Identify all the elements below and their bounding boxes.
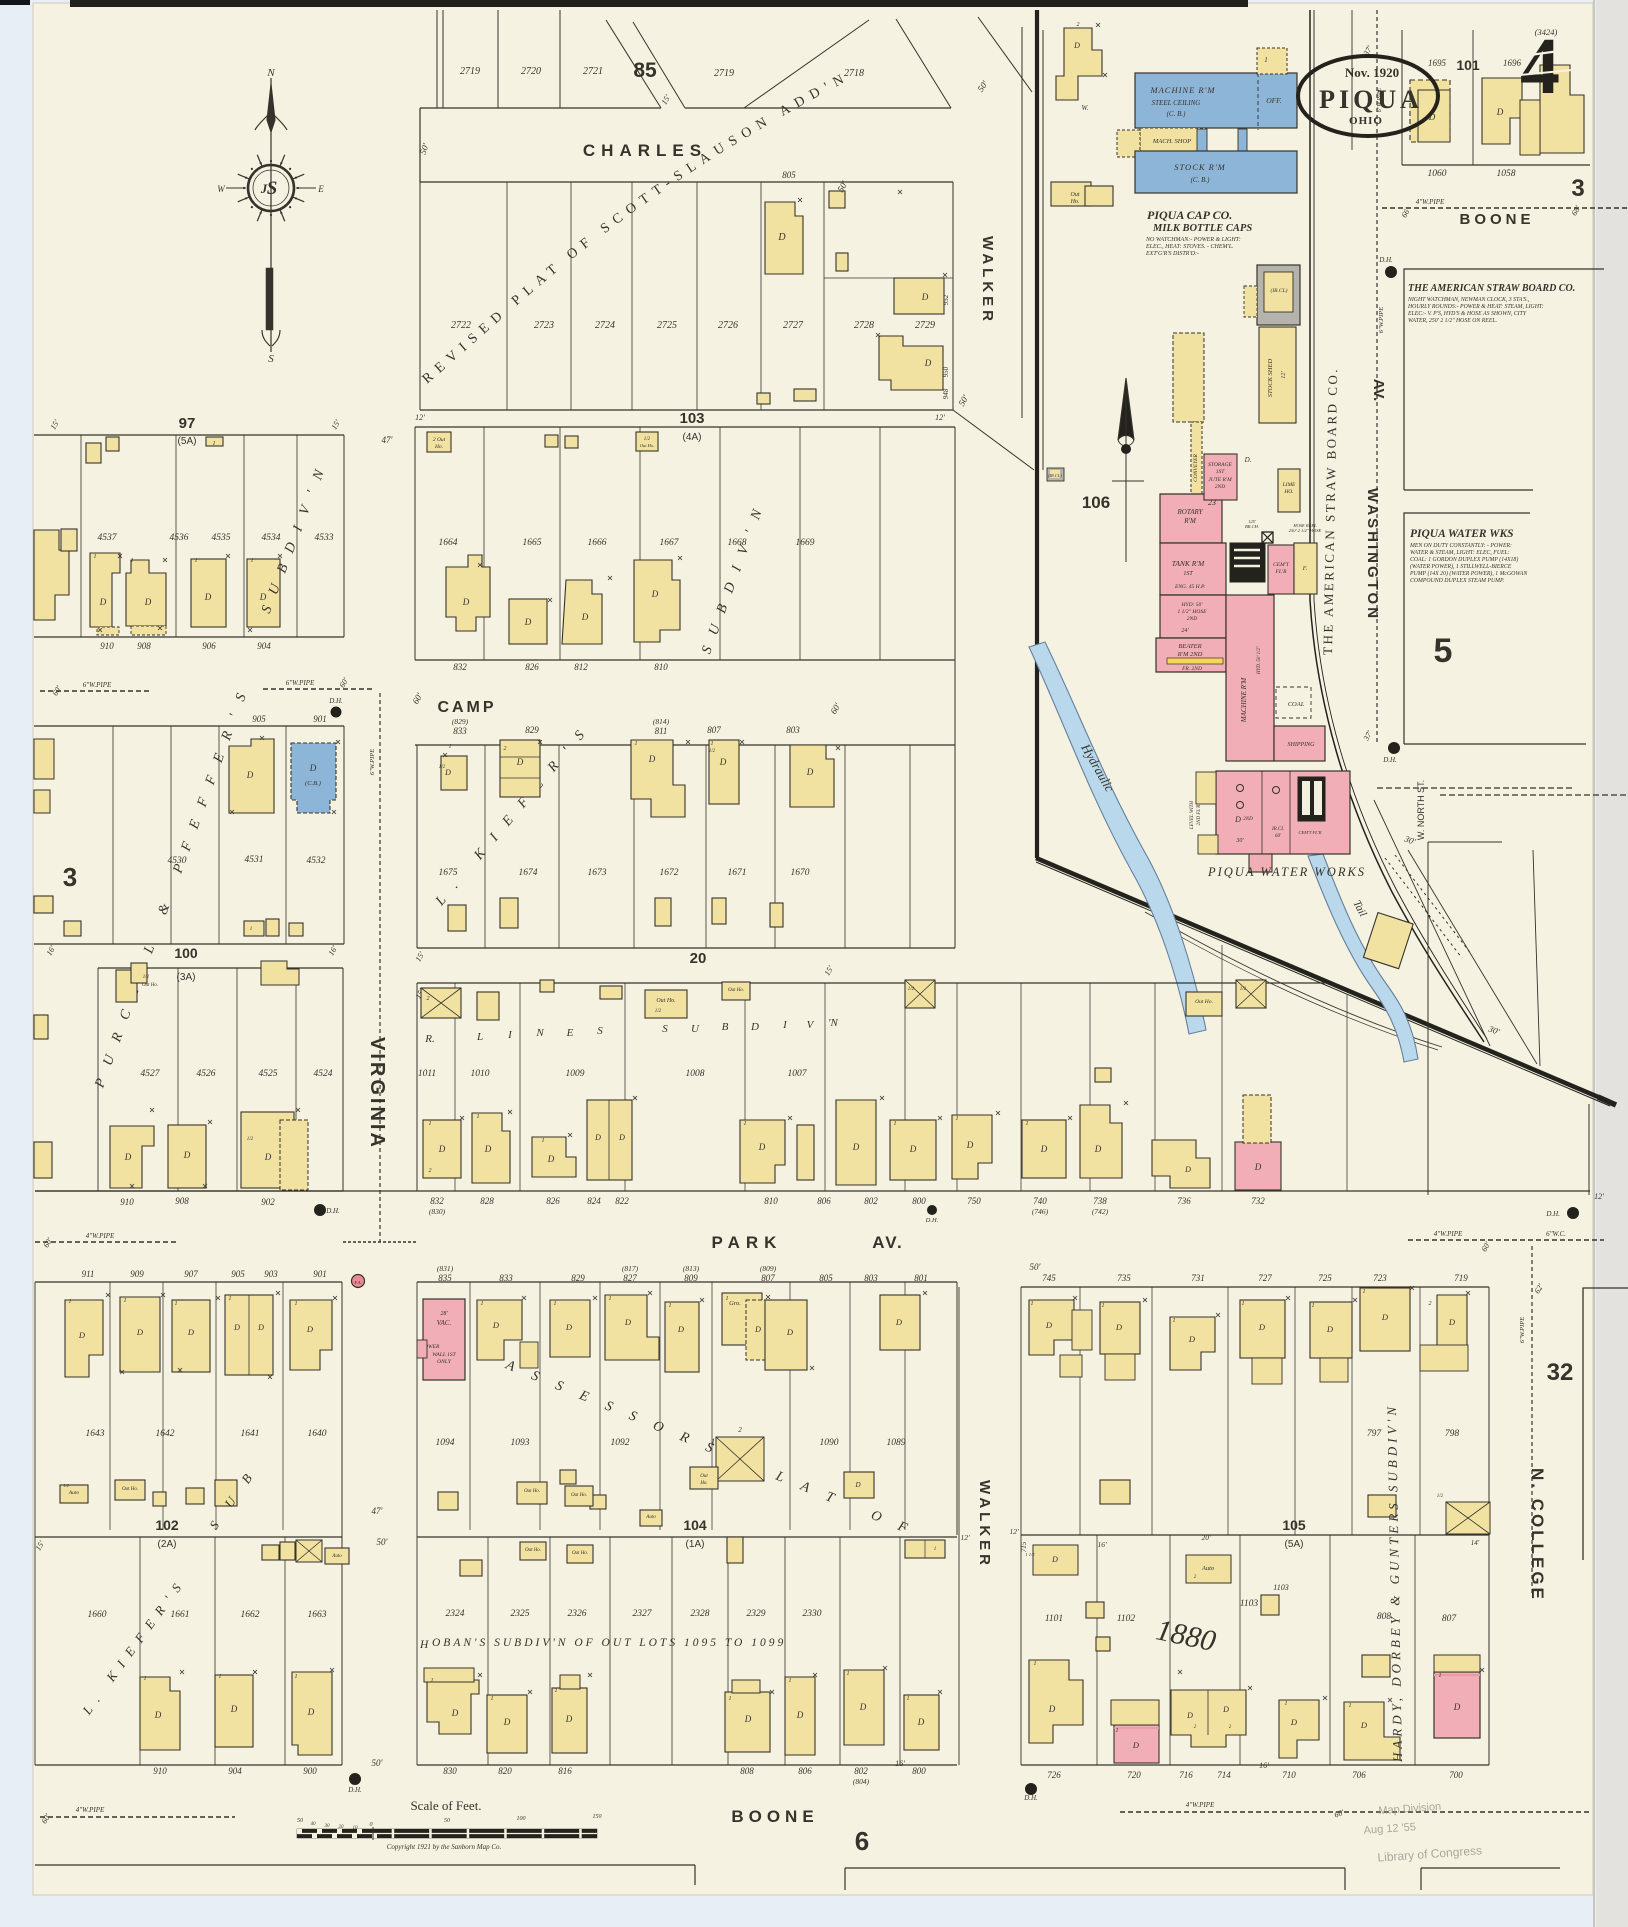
svg-text:2723: 2723 (534, 320, 554, 331)
svg-text:1090: 1090 (820, 1438, 839, 1448)
svg-text:60': 60' (1275, 834, 1282, 839)
svg-text:R'M: R'M (1183, 517, 1197, 525)
svg-text:1670: 1670 (791, 868, 810, 878)
svg-text:1: 1 (1031, 1301, 1034, 1307)
svg-text:811: 811 (655, 726, 668, 736)
svg-text:1: 1 (251, 558, 254, 564)
svg-text:2330: 2330 (803, 1609, 822, 1619)
svg-text:835: 835 (438, 1273, 452, 1283)
svg-text:24': 24' (1181, 627, 1189, 634)
svg-text:4533: 4533 (315, 533, 334, 543)
svg-text:829: 829 (571, 1273, 585, 1283)
svg-text:1672: 1672 (660, 868, 679, 878)
svg-text:OHIO: OHIO (1349, 115, 1383, 127)
svg-text:2729: 2729 (915, 320, 935, 331)
svg-text:D.H.: D.H. (347, 1786, 362, 1794)
svg-text:D: D (78, 1330, 86, 1340)
svg-text:911: 911 (82, 1269, 95, 1279)
svg-text:'N: 'N (828, 1017, 838, 1029)
svg-text:1: 1 (894, 1121, 897, 1127)
svg-text:WATER, 250' 2 1/2" HOSE ON REE: WATER, 250' 2 1/2" HOSE ON REEL. (1408, 318, 1497, 324)
svg-text:D: D (786, 1327, 794, 1337)
svg-text:1/2: 1/2 (709, 749, 716, 754)
svg-text:802: 802 (864, 1196, 878, 1206)
svg-text:N. COLLEGE: N. COLLEGE (1528, 1468, 1547, 1602)
svg-text:1: 1 (250, 927, 253, 932)
svg-text:D: D (492, 1320, 500, 1330)
svg-text:1: 1 (956, 1116, 959, 1122)
svg-text:Gro.: Gro. (729, 1300, 741, 1307)
svg-text:12': 12' (1009, 1527, 1019, 1536)
svg-text:807: 807 (1442, 1614, 1458, 1624)
svg-text:85: 85 (633, 59, 657, 82)
svg-text:J: J (260, 181, 268, 196)
svg-text:D: D (462, 597, 470, 607)
svg-text:1: 1 (726, 1296, 729, 1302)
svg-text:WATER & STEAM, LIGHT: ELEC, FU: WATER & STEAM, LIGHT: ELEC, FUEL: (1410, 550, 1510, 556)
svg-text:D: D (187, 1327, 195, 1337)
svg-text:908: 908 (175, 1196, 189, 1206)
svg-text:D: D (230, 1704, 238, 1714)
svg-text:1010: 1010 (471, 1069, 490, 1079)
svg-text:D.H.: D.H. (1378, 256, 1393, 264)
svg-text:4"W.PIPE: 4"W.PIPE (1434, 1230, 1463, 1238)
svg-text:1: 1 (635, 741, 638, 747)
svg-text:PUMP (14X 20) (WATER POWER), 1: PUMP (14X 20) (WATER POWER), 1 McGOWAN (1409, 570, 1528, 577)
svg-text:ELEC:- V. P'S, HYD'S & HOSE AS: ELEC:- V. P'S, HYD'S & HOSE AS SHOWN, CI… (1407, 311, 1527, 317)
svg-text:1: 1 (295, 1674, 298, 1680)
svg-text:Ho.: Ho. (1070, 199, 1080, 205)
svg-text:6"W.PIPE: 6"W.PIPE (83, 681, 112, 689)
svg-text:2724: 2724 (595, 320, 615, 331)
svg-text:NIGHT WATCHMAN, NEWMAN CLOCK,: NIGHT WATCHMAN, NEWMAN CLOCK, 3 STA'S., (1407, 297, 1530, 303)
svg-text:14': 14' (1471, 1539, 1480, 1547)
svg-text:826: 826 (546, 1196, 560, 1206)
svg-text:(4A): (4A) (683, 432, 702, 443)
svg-text:826: 826 (525, 662, 539, 672)
svg-text:D: D (581, 612, 589, 622)
svg-text:50': 50' (1030, 1262, 1042, 1272)
svg-text:Out Ho.: Out Ho. (728, 988, 744, 993)
svg-text:Out: Out (1071, 192, 1080, 198)
svg-text:1: 1 (213, 441, 216, 447)
svg-text:U: U (691, 1023, 700, 1035)
svg-text:2: 2 (427, 996, 430, 1002)
svg-text:6"W.PIPE: 6"W.PIPE (369, 749, 376, 776)
svg-text:ELEC., HEAT: STOVES. - CHEM'L.: ELEC., HEAT: STOVES. - CHEM'L. (1145, 244, 1234, 250)
svg-text:STORAGE: STORAGE (1208, 462, 1232, 468)
svg-text:806: 806 (798, 1766, 812, 1776)
svg-text:(5A): (5A) (178, 436, 197, 447)
svg-text:D: D (594, 1133, 601, 1142)
svg-text:D: D (1258, 1322, 1266, 1332)
svg-text:4534: 4534 (262, 533, 281, 543)
svg-text:Nov. 1920: Nov. 1920 (1345, 65, 1399, 80)
svg-text:2726: 2726 (718, 320, 738, 331)
svg-text:BR.CH.: BR.CH. (1245, 524, 1259, 529)
svg-text:(C.B.): (C.B.) (305, 780, 321, 787)
svg-text:905: 905 (252, 714, 266, 724)
svg-text:Out Ho.: Out Ho. (640, 443, 655, 448)
svg-text:4532: 4532 (307, 856, 326, 866)
svg-text:CAMP: CAMP (437, 699, 496, 716)
svg-text:6"W.PIPE: 6"W.PIPE (286, 679, 315, 687)
svg-text:1641: 1641 (241, 1429, 260, 1439)
svg-text:1007: 1007 (788, 1069, 808, 1079)
svg-text:H: H (419, 1639, 429, 1651)
svg-text:6"W.C.: 6"W.C. (1546, 1230, 1566, 1238)
svg-text:D.H.: D.H. (925, 1217, 939, 1224)
svg-text:50': 50' (372, 1758, 384, 1768)
svg-text:D: D (1234, 815, 1241, 824)
svg-text:Out: Out (700, 1474, 708, 1479)
svg-text:Out Ho.: Out Ho. (525, 1548, 541, 1553)
svg-text:1/2: 1/2 (1240, 987, 1247, 992)
svg-text:6: 6 (855, 1826, 869, 1856)
svg-text:1011: 1011 (418, 1069, 436, 1079)
svg-text:32: 32 (1547, 1359, 1574, 1386)
svg-text:104: 104 (683, 1517, 707, 1533)
svg-text:WALKER: WALKER (976, 1480, 993, 1569)
svg-text:D: D (895, 1317, 903, 1327)
svg-text:D.H.: D.H. (1545, 1210, 1560, 1218)
svg-text:D: D (1496, 107, 1504, 117)
svg-text:Ho.: Ho. (434, 444, 443, 450)
svg-text:D: D (547, 1154, 555, 1164)
svg-text:1 1/2: 1 1/2 (1025, 1552, 1035, 1557)
svg-text:1695: 1695 (1428, 58, 1447, 68)
svg-text:1643: 1643 (86, 1429, 105, 1439)
svg-text:1: 1 (555, 1688, 558, 1694)
svg-text:D: D (204, 592, 212, 602)
svg-text:D: D (1045, 1320, 1053, 1330)
svg-text:2: 2 (504, 746, 507, 752)
svg-text:1089: 1089 (887, 1438, 906, 1448)
svg-text:AV.: AV. (1370, 379, 1387, 402)
svg-text:1: 1 (229, 1296, 232, 1302)
svg-text:4"W.PIPE: 4"W.PIPE (1416, 198, 1445, 206)
svg-text:810: 810 (764, 1196, 778, 1206)
svg-text:250' 2 1/2" HOSE: 250' 2 1/2" HOSE (1289, 528, 1322, 533)
svg-text:CONVEYER: CONVEYER (1193, 453, 1199, 481)
svg-text:1642: 1642 (156, 1429, 175, 1439)
svg-text:D: D (484, 1144, 492, 1154)
svg-text:D: D (618, 1133, 625, 1142)
svg-text:800: 800 (912, 1766, 926, 1776)
svg-text:Auto: Auto (331, 1554, 342, 1559)
svg-text:D: D (565, 1714, 573, 1724)
svg-text:IR.CL: IR.CL (1271, 827, 1284, 832)
svg-text:(1A): (1A) (686, 1539, 705, 1550)
svg-text:D: D (309, 763, 317, 773)
svg-text:MACH. SHOP: MACH. SHOP (1152, 138, 1191, 145)
svg-text:105: 105 (1282, 1517, 1306, 1533)
svg-text:D: D (1360, 1720, 1368, 1730)
svg-text:D: D (264, 1152, 272, 1162)
svg-text:1058: 1058 (1497, 169, 1516, 179)
svg-text:803: 803 (864, 1273, 878, 1283)
svg-text:D: D (1326, 1324, 1334, 1334)
svg-text:832: 832 (430, 1196, 444, 1206)
svg-text:1ST: 1ST (1216, 469, 1226, 475)
svg-text:Out Ho.: Out Ho. (572, 1551, 588, 1556)
svg-text:12': 12' (1281, 371, 1287, 379)
svg-text:OBAN'S SUBDIV'N OF OUT LOT: OBAN'S SUBDIV'N OF OUT LOTS 1095 TO 1099 (432, 1637, 786, 1649)
svg-text:R'M 2ND: R'M 2ND (1177, 651, 1203, 658)
svg-text:2329: 2329 (747, 1609, 766, 1619)
svg-text:(813): (813) (683, 1264, 700, 1273)
svg-text:803: 803 (786, 725, 800, 735)
svg-text:Copyright 1921 by the Sanborn: Copyright 1921 by the Sanborn Map Co. (387, 1843, 502, 1851)
svg-text:1: 1 (934, 1547, 937, 1552)
svg-text:D: D (677, 1324, 685, 1334)
svg-text:LIME: LIME (1282, 482, 1296, 488)
svg-text:714: 714 (1217, 1770, 1231, 1780)
svg-text:2: 2 (429, 1168, 432, 1174)
svg-text:12': 12' (935, 413, 945, 422)
svg-text:MILK BOTTLE CAPS: MILK BOTTLE CAPS (1152, 223, 1252, 234)
svg-text:STOCK R'M: STOCK R'M (1174, 162, 1226, 172)
svg-text:1/2: 1/2 (908, 987, 915, 992)
svg-text:901: 901 (313, 714, 327, 724)
svg-text:1 1/2" HOSE: 1 1/2" HOSE (1178, 609, 1208, 615)
svg-text:904: 904 (228, 1766, 242, 1776)
svg-text:1663: 1663 (308, 1610, 327, 1620)
svg-text:D: D (1040, 1144, 1048, 1154)
svg-text:TANK R'M: TANK R'M (1172, 559, 1205, 568)
svg-text:1: 1 (1102, 1303, 1105, 1309)
svg-text:4531: 4531 (245, 855, 264, 865)
svg-text:805: 805 (782, 170, 796, 180)
svg-text:2725: 2725 (657, 320, 677, 331)
svg-text:1: 1 (744, 1121, 747, 1127)
svg-text:798: 798 (1445, 1429, 1460, 1439)
svg-text:E: E (317, 184, 324, 194)
svg-text:(809): (809) (760, 1264, 777, 1273)
svg-text:D: D (516, 757, 524, 767)
svg-text:MEN ON DUTY CONSTANTLY: - POWE: MEN ON DUTY CONSTANTLY: - POWER: (1409, 543, 1512, 549)
svg-text:1: 1 (1349, 1703, 1352, 1709)
svg-text:1: 1 (175, 1301, 178, 1307)
svg-text:720: 720 (1127, 1770, 1141, 1780)
svg-text:4"W.PIPE: 4"W.PIPE (76, 1806, 105, 1814)
svg-text:1: 1 (1242, 1301, 1245, 1307)
svg-text:700: 700 (1449, 1770, 1463, 1780)
svg-text:1: 1 (1026, 1121, 1029, 1127)
svg-text:N: N (535, 1027, 544, 1039)
svg-text:1060: 1060 (1428, 169, 1447, 179)
svg-text:(831): (831) (437, 1264, 454, 1273)
svg-text:738: 738 (1093, 1196, 1107, 1206)
svg-text:R.: R. (424, 1033, 434, 1045)
svg-text:800: 800 (912, 1196, 926, 1206)
svg-text:125': 125' (1248, 519, 1257, 524)
svg-text:D: D (124, 1152, 132, 1162)
svg-text:2: 2 (1077, 22, 1080, 28)
svg-text:4527: 4527 (141, 1069, 161, 1079)
svg-text:2ND: 2ND (1243, 817, 1253, 822)
svg-text:1: 1 (69, 1299, 72, 1305)
svg-text:828: 828 (480, 1196, 494, 1206)
svg-text:D: D (806, 767, 814, 777)
svg-text:N: N (266, 67, 275, 79)
svg-text:D.H.: D.H. (1382, 756, 1397, 764)
svg-text:829: 829 (525, 725, 539, 735)
svg-text:Ho.: Ho. (699, 1481, 707, 1486)
svg-text:WALL 1ST: WALL 1ST (432, 1352, 456, 1358)
svg-text:809: 809 (684, 1273, 698, 1283)
svg-text:Auto: Auto (1201, 1565, 1215, 1572)
svg-text:1665: 1665 (523, 538, 542, 548)
svg-text:4537: 4537 (98, 533, 118, 543)
svg-text:NO WATCHMAN:- POWER & LIGHT:: NO WATCHMAN:- POWER & LIGHT: (1145, 237, 1241, 243)
svg-text:820: 820 (498, 1766, 512, 1776)
svg-text:D: D (233, 1323, 240, 1332)
svg-text:807: 807 (761, 1273, 775, 1283)
svg-text:833: 833 (499, 1273, 513, 1283)
svg-text:HYD: 50': HYD: 50' (1181, 602, 1204, 608)
svg-text:Auto: Auto (68, 1490, 80, 1496)
svg-text:SHIPPING: SHIPPING (1288, 742, 1316, 748)
svg-text:50: 50 (297, 1818, 303, 1824)
svg-text:D: D (183, 1150, 191, 1160)
svg-text:D: D (306, 1324, 314, 1334)
svg-text:106: 106 (1082, 493, 1110, 512)
svg-text:1103: 1103 (1273, 1583, 1288, 1592)
svg-text:ROTARY: ROTARY (1176, 508, 1203, 516)
svg-text:Out Ho.: Out Ho. (524, 1489, 540, 1494)
svg-text:1008: 1008 (686, 1069, 705, 1079)
svg-text:PIQUA CAP CO.: PIQUA CAP CO. (1147, 208, 1232, 222)
svg-text:16': 16' (1097, 1540, 1107, 1549)
svg-text:COAL: COAL (1288, 701, 1305, 708)
svg-text:802: 802 (854, 1766, 868, 1776)
svg-text:1102: 1102 (1117, 1614, 1136, 1624)
svg-text:6"W.PIPE: 6"W.PIPE (1519, 1317, 1526, 1344)
svg-text:16': 16' (1259, 1761, 1269, 1770)
svg-text:816: 816 (558, 1766, 572, 1776)
svg-text:2328: 2328 (691, 1609, 710, 1619)
svg-text:STOCK SHED: STOCK SHED (1267, 359, 1274, 398)
svg-text:40: 40 (311, 1822, 317, 1827)
svg-text:822: 822 (615, 1196, 629, 1206)
svg-text:FR. 2ND: FR. 2ND (1181, 666, 1202, 672)
svg-text:LEVEL WITH: LEVEL WITH (1190, 801, 1195, 830)
svg-text:719: 719 (1454, 1273, 1468, 1283)
svg-text:(830): (830) (429, 1207, 446, 1216)
svg-text:PIQUA WATER WORKS: PIQUA WATER WORKS (1207, 865, 1366, 879)
svg-text:1660: 1660 (88, 1610, 107, 1620)
svg-text:4525: 4525 (259, 1069, 278, 1079)
svg-text:PIQUA WATER WKS: PIQUA WATER WKS (1410, 528, 1514, 540)
svg-text:D: D (854, 1481, 860, 1489)
svg-text:D: D (1184, 1165, 1191, 1174)
svg-text:1671: 1671 (728, 868, 747, 878)
svg-text:S: S (597, 1025, 603, 1037)
svg-text:1: 1 (1034, 1661, 1037, 1667)
svg-text:1: 1 (481, 1301, 484, 1307)
svg-text:ONLY: ONLY (437, 1359, 452, 1365)
svg-text:1: 1 (609, 1296, 612, 1302)
svg-text:(2A): (2A) (158, 1539, 177, 1550)
svg-text:2719: 2719 (714, 68, 734, 79)
svg-text:736: 736 (1177, 1196, 1191, 1206)
svg-text:740: 740 (1033, 1196, 1047, 1206)
svg-text:D.H.: D.H. (1023, 1794, 1038, 1802)
svg-text:4536: 4536 (170, 533, 189, 543)
svg-text:Out Ho.: Out Ho. (656, 998, 675, 1004)
svg-text:1662: 1662 (241, 1610, 260, 1620)
svg-text:D: D (777, 232, 786, 243)
svg-text:812: 812 (574, 662, 588, 672)
svg-text:S: S (268, 353, 274, 365)
svg-text:W. NORTH ST.: W. NORTH ST. (1416, 780, 1426, 840)
svg-text:MACHINE R'M: MACHINE R'M (1150, 85, 1216, 95)
svg-text:CEM'T FL'R: CEM'T FL'R (1299, 830, 1322, 835)
svg-text:0: 0 (370, 1822, 373, 1828)
svg-text:900: 900 (303, 1766, 317, 1776)
svg-text:2ND FL'R: 2ND FL'R (1197, 805, 1202, 826)
svg-text:1ST: 1ST (1183, 571, 1193, 577)
svg-text:(829): (829) (452, 717, 469, 726)
svg-text:1: 1 (789, 1678, 792, 1684)
svg-text:1661: 1661 (171, 1610, 190, 1620)
svg-text:805: 805 (819, 1273, 833, 1283)
svg-text:Out Ho.: Out Ho. (1195, 999, 1213, 1005)
svg-text:D: D (966, 1140, 974, 1150)
svg-text:Out Ho.: Out Ho. (142, 983, 158, 988)
svg-text:47': 47' (372, 1506, 384, 1516)
svg-text:710: 710 (1282, 1770, 1296, 1780)
svg-text:D: D (750, 1021, 759, 1033)
svg-text:D: D (859, 1702, 867, 1712)
svg-text:1: 1 (729, 1696, 732, 1702)
svg-text:D: D (1254, 1162, 1262, 1172)
svg-text:D: D (796, 1710, 804, 1720)
svg-text:D: D (1448, 1317, 1456, 1327)
svg-text:2722: 2722 (451, 320, 471, 331)
svg-text:20: 20 (690, 950, 707, 967)
svg-text:904: 904 (257, 641, 271, 651)
svg-text:D: D (451, 1708, 459, 1718)
svg-text:28': 28' (440, 1311, 448, 1317)
svg-text:D: D (1048, 1704, 1056, 1714)
svg-text:E: E (566, 1027, 574, 1039)
svg-text:PIQUA: PIQUA (1319, 85, 1423, 114)
svg-text:901: 901 (313, 1269, 327, 1279)
svg-text:1: 1 (669, 1303, 672, 1309)
svg-text:2327: 2327 (633, 1609, 653, 1619)
svg-text:1667: 1667 (660, 538, 680, 548)
svg-text:903: 903 (264, 1269, 278, 1279)
svg-text:1: 1 (907, 1696, 910, 1702)
svg-text:MACHINE R'M: MACHINE R'M (1240, 677, 1248, 724)
svg-text:1664: 1664 (439, 538, 458, 548)
svg-text:1669: 1669 (796, 538, 815, 548)
svg-text:4: 4 (1520, 23, 1560, 111)
svg-text:1: 1 (219, 1674, 222, 1680)
svg-text:100: 100 (517, 1816, 526, 1822)
svg-text:1: 1 (449, 744, 452, 750)
svg-text:1: 1 (1116, 1728, 1119, 1734)
svg-text:810: 810 (654, 662, 668, 672)
svg-text:1/2: 1/2 (1437, 1494, 1444, 1499)
svg-text:4"W.PIPE: 4"W.PIPE (86, 1232, 115, 1240)
svg-text:150: 150 (593, 1814, 602, 1820)
svg-text:824: 824 (587, 1196, 601, 1206)
svg-text:D: D (924, 358, 932, 368)
svg-text:750: 750 (967, 1196, 981, 1206)
